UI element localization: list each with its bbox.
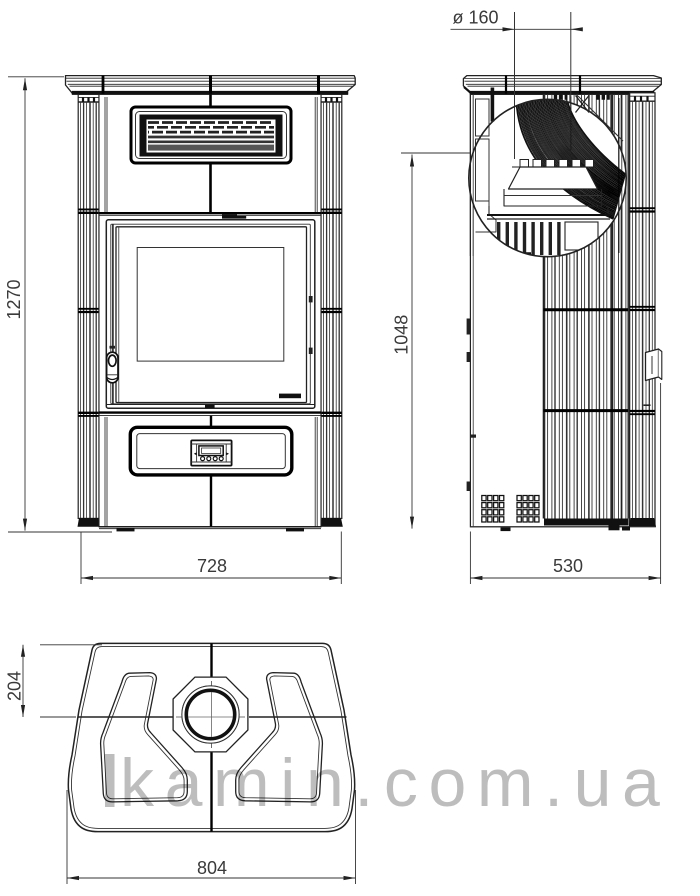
svg-text:kamin.com.ua: kamin.com.ua: [120, 745, 670, 821]
svg-text:804: 804: [197, 858, 227, 878]
svg-text:204: 204: [5, 671, 25, 701]
svg-text:1048: 1048: [392, 315, 412, 355]
svg-text:1270: 1270: [4, 279, 24, 319]
svg-text:530: 530: [553, 556, 583, 576]
svg-text:ø 160: ø 160: [453, 8, 499, 28]
svg-text:728: 728: [197, 556, 227, 576]
